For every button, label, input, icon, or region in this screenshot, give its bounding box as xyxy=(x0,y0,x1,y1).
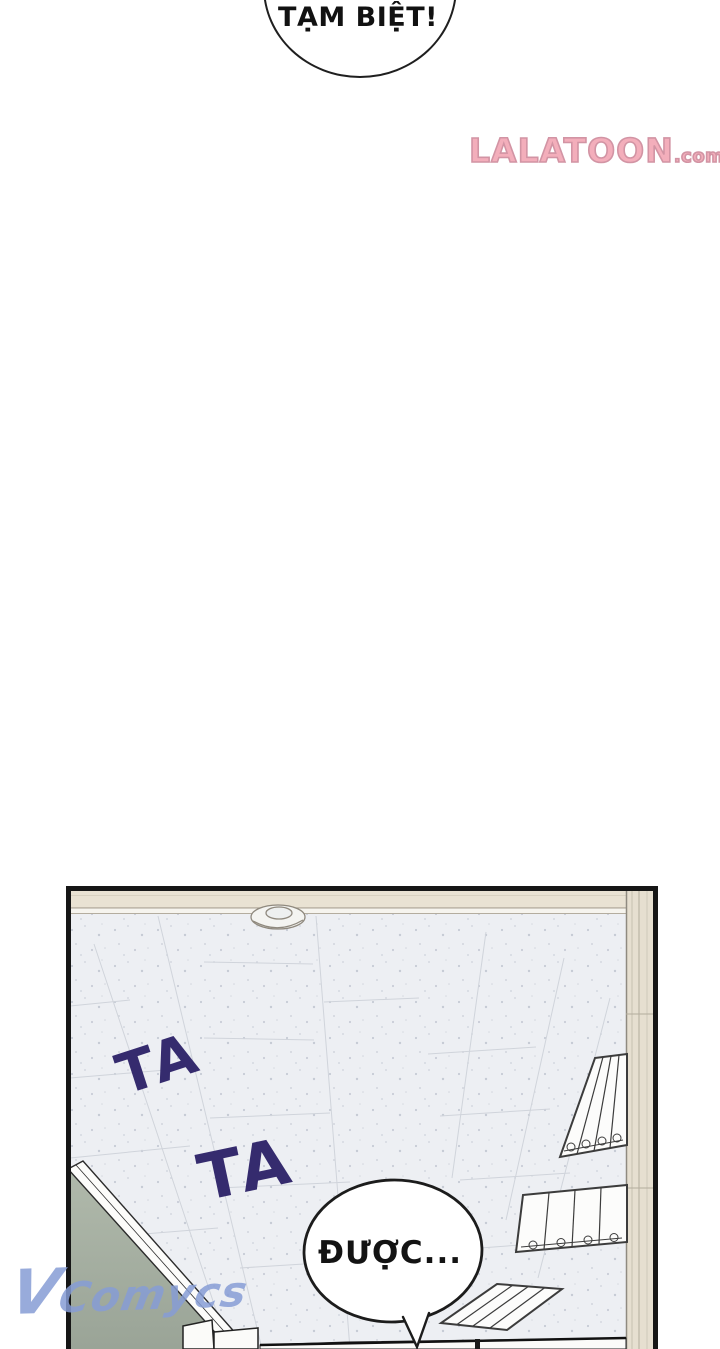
fluorescent-light-2 xyxy=(516,1185,627,1252)
vcomycs-watermark: VComycs xyxy=(6,1254,254,1324)
lalatoon-logo: LALATOON.com xyxy=(469,131,720,170)
speech-bubble-text: ĐƯỢC... xyxy=(318,1235,462,1271)
lalatoon-logo-suffix: .com xyxy=(674,146,720,167)
top-speech-bubble-text: TẠM BIỆT! xyxy=(268,2,448,33)
lalatoon-logo-text: LALATOON xyxy=(469,131,674,170)
recessed-light-icon xyxy=(251,905,305,929)
right-wall-strip xyxy=(626,890,653,1349)
crown-molding xyxy=(70,890,654,914)
